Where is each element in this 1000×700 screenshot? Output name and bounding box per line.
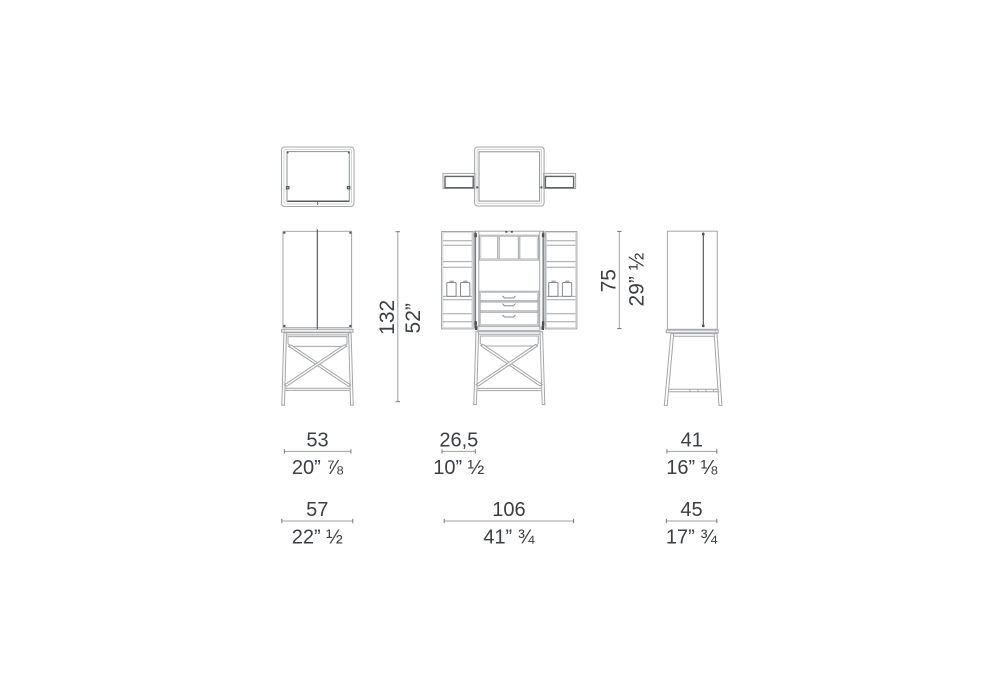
svg-text:29” ½: 29” ½ [625, 253, 648, 307]
svg-text:26,5: 26,5 [439, 430, 478, 452]
svg-text:132: 132 [376, 300, 399, 335]
svg-text:45: 45 [680, 499, 702, 521]
svg-text:22” ½: 22” ½ [292, 527, 343, 549]
svg-text:57: 57 [306, 499, 328, 521]
svg-text:75: 75 [597, 269, 620, 292]
svg-text:17” ¾: 17” ¾ [666, 527, 717, 549]
svg-text:53: 53 [306, 430, 328, 452]
svg-text:10” ½: 10” ½ [433, 457, 484, 479]
svg-text:16” ⅛: 16” ⅛ [666, 457, 717, 479]
svg-text:41: 41 [681, 430, 703, 452]
svg-text:41” ¾: 41” ¾ [483, 527, 534, 549]
svg-text:106: 106 [492, 499, 525, 521]
svg-text:52”: 52” [402, 303, 425, 333]
svg-text:20” ⅞: 20” ⅞ [292, 457, 343, 479]
